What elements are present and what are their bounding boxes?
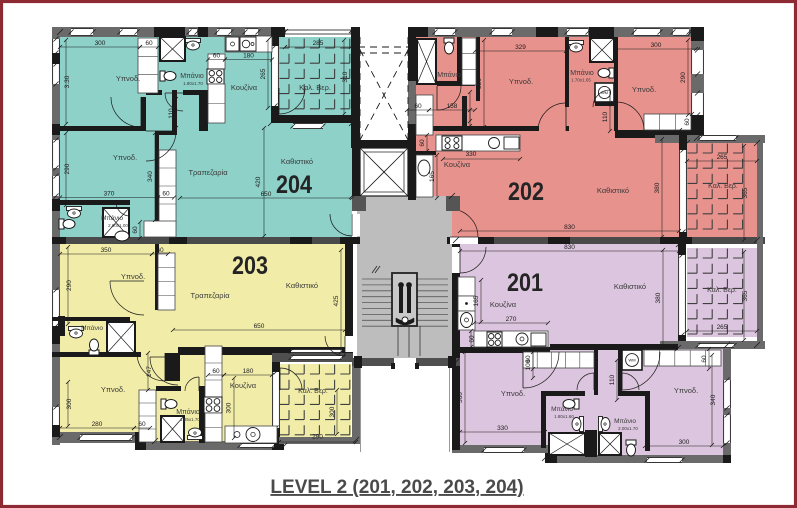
svg-text:60: 60: [145, 40, 153, 47]
svg-text:60: 60: [132, 226, 139, 234]
svg-text:360: 360: [457, 392, 464, 403]
svg-text:110: 110: [168, 108, 175, 119]
svg-text:Καλ. Βερ.: Καλ. Βερ.: [708, 183, 738, 190]
svg-text:1.80x1.70: 1.80x1.70: [183, 81, 203, 86]
svg-text:Καθιστικό: Καθιστικό: [281, 157, 313, 166]
svg-text:330: 330: [497, 425, 508, 432]
svg-text:110: 110: [462, 101, 469, 112]
svg-text:830: 830: [564, 224, 575, 231]
svg-text:329: 329: [515, 44, 526, 51]
svg-text:202: 202: [508, 178, 544, 206]
svg-text:203: 203: [232, 252, 268, 280]
svg-text:Μπάνιο: Μπάνιο: [176, 408, 200, 416]
svg-text:60: 60: [414, 103, 422, 110]
svg-text:300: 300: [679, 439, 690, 446]
svg-text:650: 650: [261, 191, 272, 198]
svg-text:650: 650: [254, 323, 265, 330]
svg-text:Υπνοδ.: Υπνοδ.: [509, 77, 533, 86]
svg-text:Καλ. Βερ.: Καλ. Βερ.: [298, 388, 328, 395]
svg-text:290: 290: [64, 163, 71, 174]
svg-text:60: 60: [138, 421, 146, 428]
svg-text:265: 265: [717, 324, 728, 331]
svg-text:180: 180: [243, 52, 254, 59]
svg-text:60: 60: [162, 190, 170, 197]
svg-text:290: 290: [680, 72, 687, 83]
svg-text:60: 60: [156, 247, 164, 254]
svg-text:Τραπεζαρία: Τραπεζαρία: [190, 291, 230, 300]
svg-text:60: 60: [701, 355, 708, 363]
svg-text:265: 265: [717, 154, 728, 161]
svg-text:Καθιστικό: Καθιστικό: [597, 186, 629, 195]
svg-text:60: 60: [462, 114, 469, 122]
svg-text:Υπνοδ.: Υπνοδ.: [101, 385, 125, 394]
svg-text:Τραπεζαρία: Τραπεζαρία: [188, 168, 228, 177]
svg-text:285: 285: [313, 40, 324, 47]
svg-text:425: 425: [333, 295, 340, 306]
svg-text:1.85x1.70: 1.85x1.70: [180, 417, 200, 422]
svg-text:60: 60: [469, 335, 476, 343]
svg-text:60: 60: [212, 368, 220, 375]
svg-text:Μπάνιο: Μπάνιο: [570, 69, 594, 77]
svg-text:350: 350: [476, 78, 483, 89]
svg-text:300: 300: [66, 398, 73, 409]
svg-text:265: 265: [260, 68, 267, 79]
svg-text:365: 365: [742, 187, 749, 198]
svg-text:60: 60: [213, 52, 221, 59]
svg-text:3.30: 3.30: [64, 75, 71, 88]
svg-text:165: 165: [473, 295, 480, 306]
svg-text:330: 330: [466, 151, 477, 158]
svg-text:2.00x1.70: 2.00x1.70: [618, 426, 638, 431]
svg-text:2.60x1.00: 2.60x1.00: [108, 223, 128, 228]
svg-text:204: 204: [276, 171, 312, 199]
svg-text:365: 365: [742, 290, 749, 301]
svg-text:Μπάνιο: Μπάνιο: [614, 417, 636, 425]
svg-text:350: 350: [101, 247, 112, 254]
svg-text:Κουζίνα: Κουζίνα: [490, 300, 517, 309]
svg-text:830: 830: [564, 244, 575, 251]
svg-text:158: 158: [447, 103, 458, 110]
svg-text:Μπάνιο: Μπάνιο: [101, 214, 123, 222]
svg-text:60: 60: [419, 139, 426, 147]
svg-text:380: 380: [655, 292, 662, 303]
svg-text:Κουζίνα: Κουζίνα: [231, 83, 258, 92]
svg-text:201: 201: [507, 269, 543, 297]
svg-text:310: 310: [342, 71, 349, 82]
svg-text:Υπνοδ.: Υπνοδ.: [113, 153, 137, 162]
svg-text:380: 380: [654, 182, 661, 193]
svg-text:Καθιστικό: Καθιστικό: [286, 281, 318, 290]
svg-text:Καθιστικό: Καθιστικό: [614, 282, 646, 291]
svg-text:370: 370: [104, 190, 115, 197]
svg-text:Υπνοδ.: Υπνοδ.: [674, 386, 698, 395]
svg-text:Κουζίνα: Κουζίνα: [230, 381, 257, 390]
svg-text:Υπνοδ.: Υπνοδ.: [121, 272, 145, 281]
svg-text:110: 110: [602, 111, 609, 122]
svg-text:1.80x1.60: 1.80x1.60: [554, 414, 574, 419]
svg-text:290: 290: [66, 280, 73, 291]
svg-text:340: 340: [710, 394, 717, 405]
svg-text:Καλ. Βερ.: Καλ. Βερ.: [299, 83, 331, 92]
svg-text:270: 270: [506, 316, 517, 323]
svg-text:Υπνοδ.: Υπνοδ.: [501, 389, 525, 398]
svg-text:280: 280: [92, 421, 103, 428]
svg-text:WM: WM: [628, 358, 635, 363]
svg-text:340: 340: [147, 171, 154, 182]
svg-text:Καλ. Βερ.: Καλ. Βερ.: [707, 287, 737, 294]
svg-text:Μπάνιο: Μπάνιο: [437, 71, 461, 79]
svg-text:LEVEL 2 (201, 202, 203, 204): LEVEL 2 (201, 202, 203, 204): [270, 477, 523, 498]
svg-text:300: 300: [95, 40, 106, 47]
svg-text:Μπάνιο: Μπάνιο: [81, 324, 103, 332]
svg-text:Υπνοδ.: Υπνοδ.: [116, 74, 140, 83]
svg-text:1.70x1.65: 1.70x1.65: [571, 78, 591, 83]
svg-text:180: 180: [243, 368, 254, 375]
svg-text:147: 147: [146, 366, 153, 377]
svg-text:165: 165: [429, 171, 436, 182]
svg-text:290: 290: [312, 434, 323, 441]
svg-text:420: 420: [255, 176, 262, 187]
svg-text:110: 110: [609, 374, 616, 385]
svg-text:300: 300: [329, 406, 336, 417]
svg-text:Μπάνιο: Μπάνιο: [180, 72, 204, 80]
svg-text:60: 60: [684, 118, 691, 126]
svg-text:100: 100: [525, 359, 532, 370]
svg-text:Υπνοδ.: Υπνοδ.: [632, 85, 656, 94]
svg-text:Κουζίνα: Κουζίνα: [444, 160, 471, 169]
svg-text:300: 300: [226, 402, 233, 413]
svg-text:300: 300: [651, 42, 662, 49]
svg-text:Μπάνιο: Μπάνιο: [551, 405, 573, 413]
